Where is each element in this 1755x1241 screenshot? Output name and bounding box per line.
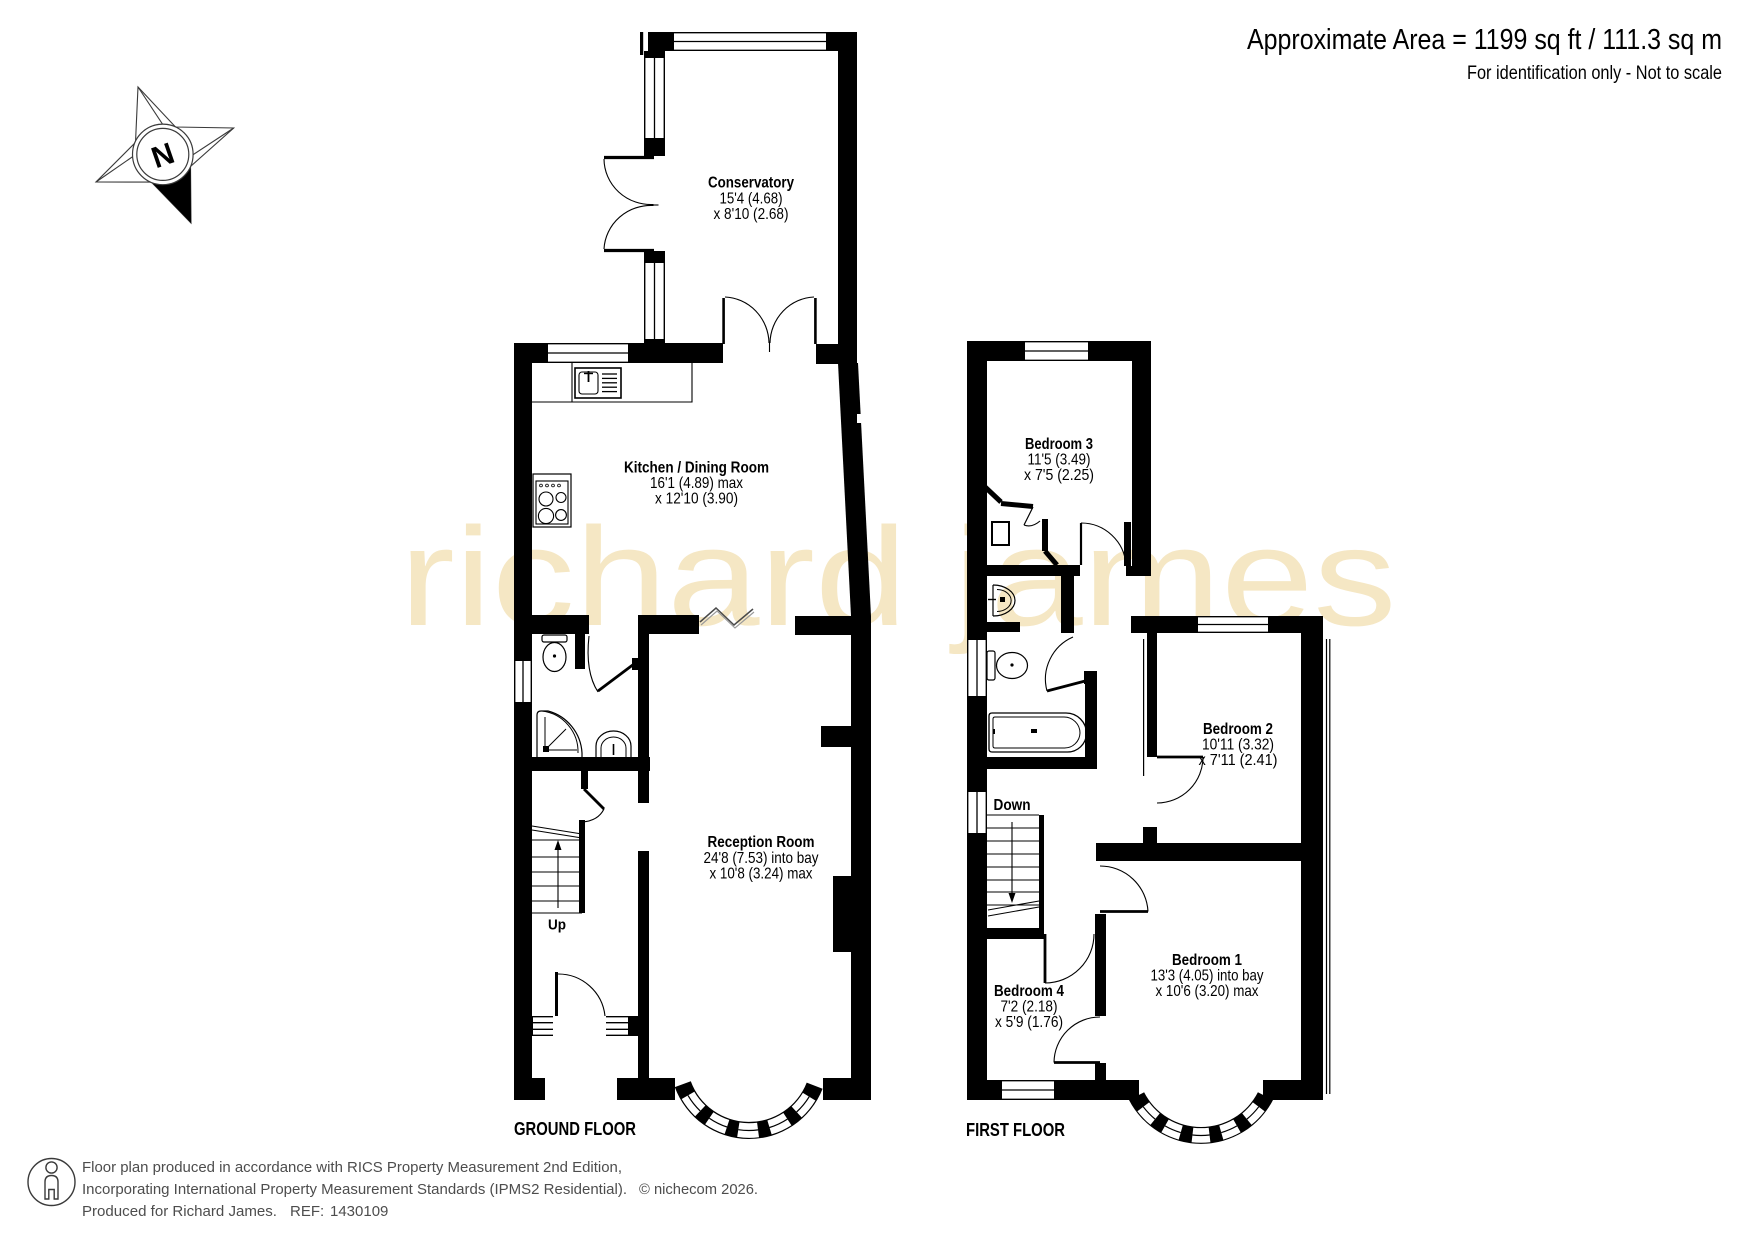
svg-text:x 7'5 (2.25): x 7'5 (2.25) xyxy=(1024,467,1094,484)
svg-text:x 10'8 (3.24) max: x 10'8 (3.24) max xyxy=(710,865,813,882)
svg-text:24'8 (7.53) into bay: 24'8 (7.53) into bay xyxy=(704,850,819,867)
svg-text:FIRST FLOOR: FIRST FLOOR xyxy=(966,1120,1065,1140)
svg-text:x 10'6 (3.20) max: x 10'6 (3.20) max xyxy=(1156,983,1259,1000)
svg-text:7'2 (2.18): 7'2 (2.18) xyxy=(1001,999,1058,1016)
svg-text:Bedroom 4: Bedroom 4 xyxy=(994,983,1064,1000)
svg-text:Bedroom 1: Bedroom 1 xyxy=(1172,952,1242,969)
svg-text:Reception Room: Reception Room xyxy=(708,834,815,851)
svg-text:x 5'9 (1.76): x 5'9 (1.76) xyxy=(995,1014,1063,1031)
svg-text:Up: Up xyxy=(548,917,566,934)
svg-text:Approximate Area = 1199 sq ft: Approximate Area = 1199 sq ft / 111.3 sq… xyxy=(1247,24,1722,56)
svg-text:1430109: 1430109 xyxy=(330,1203,388,1220)
svg-text:11'5 (3.49): 11'5 (3.49) xyxy=(1028,452,1091,469)
svg-text:16'1 (4.89) max: 16'1 (4.89) max xyxy=(650,475,743,492)
svg-text:© nichecom 2026.: © nichecom 2026. xyxy=(639,1181,758,1198)
svg-text:x 8'10 (2.68): x 8'10 (2.68) xyxy=(714,206,789,223)
svg-text:x 12'10 (3.90): x 12'10 (3.90) xyxy=(655,491,738,508)
svg-text:15'4 (4.68): 15'4 (4.68) xyxy=(720,190,783,207)
svg-text:Floor plan produced in accorda: Floor plan produced in accordance with R… xyxy=(82,1159,622,1176)
svg-text:x 7'11 (2.41): x 7'11 (2.41) xyxy=(1199,752,1278,769)
svg-text:For identification only - Not: For identification only - Not to scale xyxy=(1467,62,1722,84)
svg-text:Bedroom 3: Bedroom 3 xyxy=(1025,436,1093,453)
svg-text:Down: Down xyxy=(994,797,1031,814)
svg-text:GROUND FLOOR: GROUND FLOOR xyxy=(514,1119,636,1139)
svg-text:Bedroom 2: Bedroom 2 xyxy=(1203,721,1273,738)
svg-text:Produced for Richard James.: Produced for Richard James. xyxy=(82,1203,277,1220)
svg-text:Kitchen / Dining Room: Kitchen / Dining Room xyxy=(624,460,769,477)
svg-text:13'3 (4.05) into bay: 13'3 (4.05) into bay xyxy=(1151,968,1264,985)
svg-text:Incorporating International Pr: Incorporating International Property Mea… xyxy=(82,1181,627,1198)
svg-text:Conservatory: Conservatory xyxy=(708,175,794,192)
svg-text:10'11 (3.32): 10'11 (3.32) xyxy=(1202,737,1274,754)
svg-text:REF:: REF: xyxy=(290,1203,324,1220)
